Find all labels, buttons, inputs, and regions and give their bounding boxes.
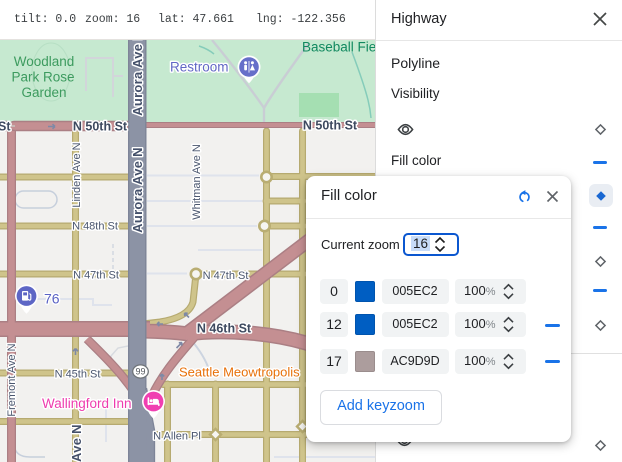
svg-text:N 48th St: N 48th St (72, 221, 118, 233)
svg-text:St: St (0, 120, 11, 134)
svg-text:N 47th St: N 47th St (73, 270, 119, 282)
svg-text:Wallingford Inn: Wallingford Inn (42, 396, 132, 411)
svg-text:Whitman Ave N: Whitman Ave N (191, 144, 203, 220)
svg-text:Linden Ave N: Linden Ave N (69, 424, 84, 462)
svg-text:Seattle Meowtropolis: Seattle Meowtropolis (179, 365, 300, 380)
svg-text:99: 99 (135, 367, 145, 377)
svg-text:N 46th St: N 46th St (197, 322, 252, 336)
svg-text:Woodland: Woodland (14, 54, 75, 69)
svg-text:N 50th St: N 50th St (303, 119, 358, 133)
svg-text:Linden Ave N: Linden Ave N (71, 142, 83, 207)
svg-text:Fremont Ave N: Fremont Ave N (6, 343, 18, 416)
svg-text:Garden: Garden (21, 85, 66, 100)
svg-text:Aurora Ave N: Aurora Ave N (130, 147, 145, 233)
svg-text:76: 76 (44, 291, 60, 307)
svg-text:N 50th St: N 50th St (73, 120, 128, 134)
svg-text:N Allen Pl: N Allen Pl (153, 431, 201, 443)
svg-text:Park Rose: Park Rose (11, 70, 74, 85)
svg-text:Aurora Ave N: Aurora Ave N (130, 30, 145, 116)
svg-text:Baseball Fie: Baseball Fie (302, 40, 375, 55)
svg-text:Restroom: Restroom (170, 60, 229, 75)
svg-text:N 47th St: N 47th St (203, 270, 249, 282)
svg-text:N 45th St: N 45th St (55, 369, 101, 381)
